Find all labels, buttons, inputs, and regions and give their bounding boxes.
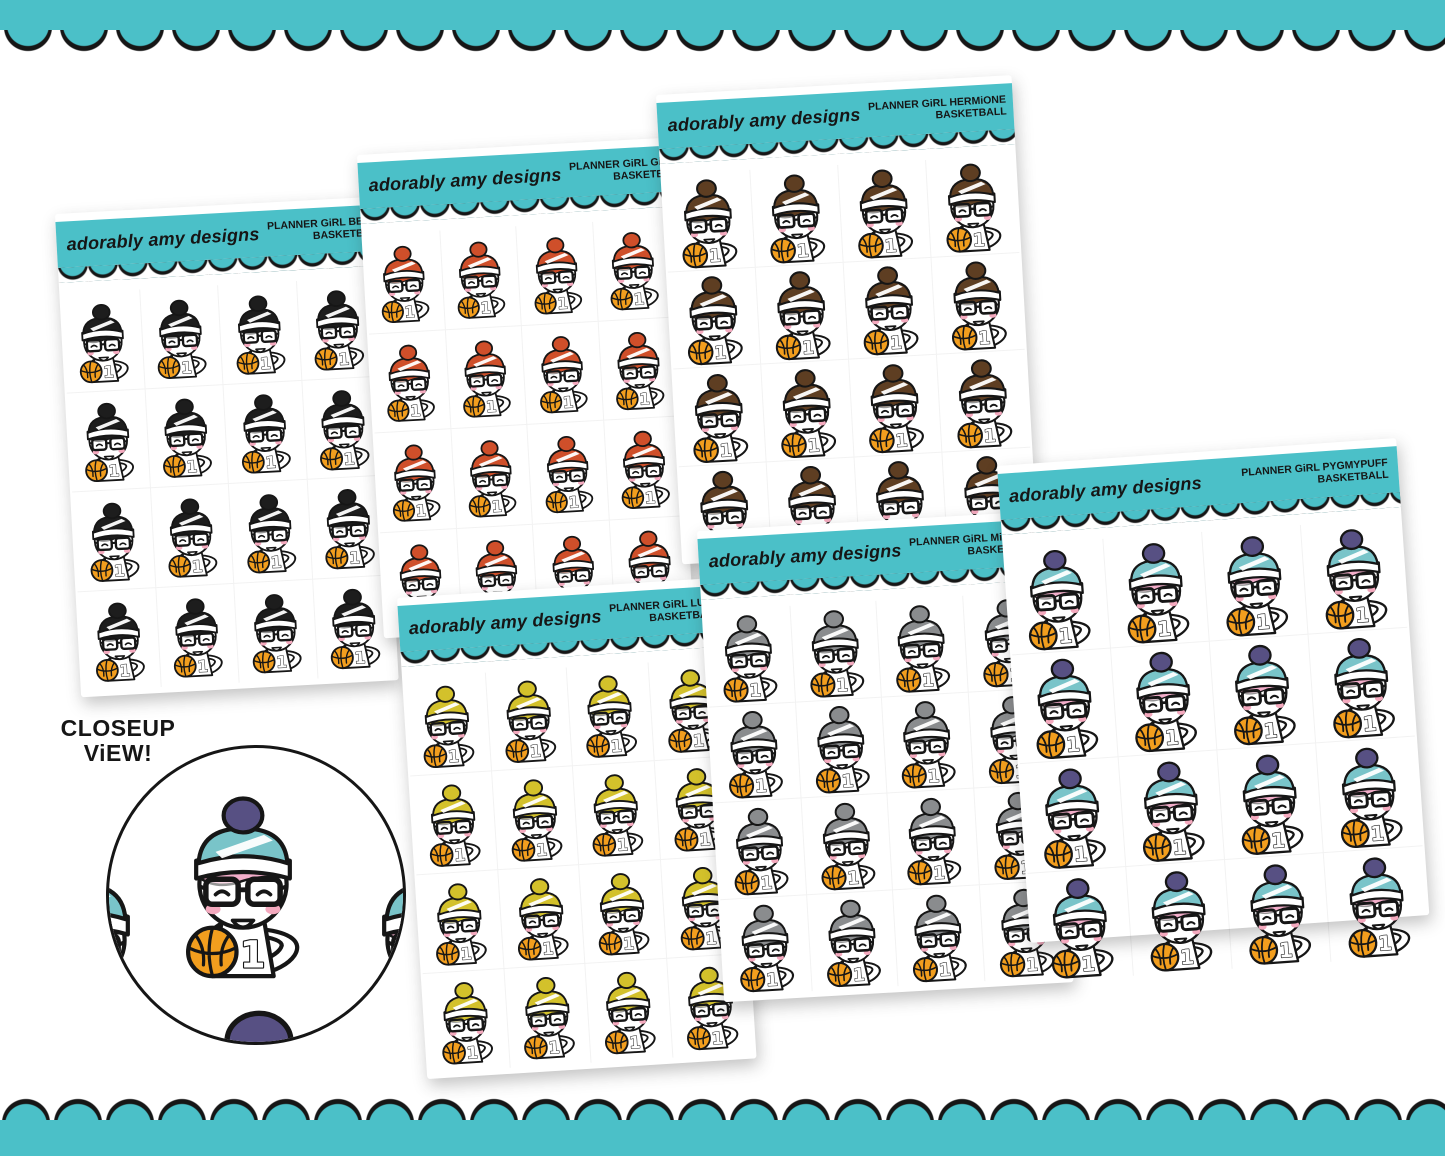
planner-girl-sticker <box>838 160 931 262</box>
planner-girl-character <box>502 870 580 963</box>
planner-girl-sticker <box>1126 860 1232 975</box>
planner-girl-character <box>66 296 140 385</box>
planner-girl-sticker <box>61 290 145 394</box>
planner-girl-sticker <box>67 389 151 493</box>
sticker-sheet-hermione: adorably amy designs PLANNER GiRL HERMiO… <box>656 75 1038 564</box>
planner-girl-sticker <box>72 488 156 592</box>
planner-girl-sticker <box>604 416 686 520</box>
planner-girl-sticker <box>369 330 451 434</box>
planner-girl-character <box>794 602 876 700</box>
planner-girl-sticker <box>522 321 604 425</box>
planner-girl-character <box>941 351 1025 451</box>
planner-girl-character <box>936 253 1020 353</box>
scalloped-border-bottom <box>0 1120 1445 1156</box>
planner-girl-character <box>450 334 522 421</box>
sheet-banner: adorably amy designs PLANNER GiRL BELLA … <box>55 205 375 268</box>
planner-girl-character <box>571 667 649 760</box>
planner-girl-character <box>597 225 670 313</box>
sticker-sheet-bella: adorably amy designs PLANNER GiRL BELLA … <box>55 197 399 697</box>
planner-girl-character <box>160 591 234 680</box>
planner-girl-sticker <box>218 281 302 385</box>
planner-girl-character <box>897 886 979 984</box>
planner-girl-sticker <box>893 885 985 986</box>
sticker-sheet-luna: adorably amy designs PLANNER GiRL LUNA B… <box>397 577 757 1079</box>
planner-girl-sticker <box>1301 518 1407 634</box>
planner-girl-sticker <box>1103 532 1209 648</box>
planner-girl-sticker <box>1005 539 1111 655</box>
planner-girl-sticker <box>720 895 812 996</box>
planner-girl-sticker <box>1217 744 1323 860</box>
planner-girl-character <box>532 429 604 516</box>
planner-girl-sticker <box>709 702 801 803</box>
planner-girl-character <box>930 156 1014 256</box>
planner-girl-character <box>805 795 887 893</box>
product-image: 1 adorably <box>0 0 1445 1156</box>
planner-girl-character <box>853 356 937 456</box>
planner-girl-character <box>526 329 598 416</box>
planner-girl-sticker <box>1119 751 1225 867</box>
planner-girl-character <box>800 698 882 796</box>
planner-girl-character <box>719 800 801 898</box>
sheet-banner: adorably amy designs PLANNER GiRL MiNERV… <box>697 519 1049 585</box>
planner-girl-character <box>1010 540 1105 653</box>
planner-girl-sticker <box>423 969 511 1073</box>
planner-girl-sticker <box>1316 737 1422 853</box>
planner-girl-character <box>755 166 839 266</box>
sticker-grid <box>61 277 396 691</box>
brand-logo-text: adorably amy designs <box>408 606 602 639</box>
planner-girl-character <box>427 975 505 1068</box>
scalloped-border-top <box>0 0 1445 30</box>
planner-girl-character <box>602 324 675 412</box>
planner-girl-sticker <box>926 155 1019 257</box>
planner-girl-sticker <box>761 360 854 462</box>
planner-girl-character <box>1131 861 1226 974</box>
planner-girl-character <box>144 292 218 381</box>
planner-girl-sticker <box>1020 758 1126 874</box>
planner-girl-sticker <box>1012 648 1118 764</box>
planner-girl-character <box>415 777 493 870</box>
planner-girl-sticker <box>498 865 586 969</box>
planner-girl-sticker <box>451 425 533 529</box>
planner-girl-sticker <box>931 253 1024 355</box>
planner-girl-sticker <box>849 355 942 457</box>
closeup-partial-character-right <box>349 840 406 1037</box>
planner-girl-sticker <box>573 761 661 865</box>
planner-girl-character <box>708 607 790 705</box>
planner-girl-character <box>520 230 592 317</box>
planner-girl-character <box>590 964 668 1057</box>
planner-girl-sticker <box>504 964 592 1068</box>
closeup-label: CLOSEUP ViEW! <box>56 716 180 766</box>
planner-girl-character <box>222 288 296 377</box>
sticker-grid <box>363 218 691 632</box>
planner-girl-sticker <box>1028 867 1134 982</box>
planner-girl-character <box>82 595 156 684</box>
planner-girl-sticker <box>1324 846 1430 961</box>
sticker-grid <box>1005 518 1427 937</box>
planner-girl-sticker <box>363 230 445 334</box>
planner-girl-sticker <box>234 579 318 683</box>
planner-girl-sticker <box>807 890 899 991</box>
sheet-banner: adorably amy designs PLANNER GiRL LUNA B… <box>398 585 730 652</box>
planner-girl-character <box>421 875 499 968</box>
sticker-sheet-ginny: adorably amy designs PLANNER GiRL GiNNY … <box>357 138 694 639</box>
sticker-grid <box>662 155 1035 558</box>
planner-girl-character <box>1222 745 1317 858</box>
planner-girl-sticker <box>801 793 893 894</box>
planner-girl-sticker <box>445 326 527 430</box>
planner-girl-character <box>1215 635 1310 748</box>
planner-girl-sticker <box>593 218 675 322</box>
planner-girl-character <box>811 891 893 989</box>
planner-girl-sticker <box>668 267 761 369</box>
planner-girl-character <box>1329 847 1425 961</box>
planner-girl-sticker <box>404 673 492 777</box>
sheet-title: PLANNER GiRL PYGMYPUFF BASKETBALL <box>1241 458 1389 492</box>
planner-girl-character <box>233 487 307 576</box>
planner-girl-sticker <box>140 285 224 389</box>
planner-girl-sticker <box>882 692 974 793</box>
planner-girl-character <box>1306 519 1402 633</box>
planner-girl-character <box>368 239 440 326</box>
brand-logo-text: adorably amy designs <box>368 164 562 196</box>
planner-girl-character <box>408 678 486 771</box>
planner-girl-character <box>490 673 568 766</box>
planner-girl-character <box>1321 738 1417 852</box>
planner-girl-sticker <box>223 380 307 484</box>
planner-girl-sticker <box>1210 634 1316 750</box>
planner-girl-character <box>228 387 302 476</box>
planner-girl-sticker <box>790 601 882 702</box>
planner-girl-sticker <box>416 870 504 974</box>
planner-girl-character <box>1313 628 1409 742</box>
planner-girl-sticker <box>887 788 979 889</box>
planner-girl-sticker <box>1309 627 1415 743</box>
sheet-banner: adorably amy designs PLANNER GiRL PYGMYP… <box>998 446 1400 520</box>
sticker-sheet-pygmypuff: adorably amy designs PLANNER GiRL PYGMYP… <box>997 438 1429 943</box>
planner-girl-sticker <box>77 588 161 692</box>
planner-girl-sticker <box>516 222 598 326</box>
planner-girl-character <box>1124 752 1219 865</box>
brand-logo-text: adorably amy designs <box>66 223 260 254</box>
planner-girl-character <box>149 392 223 481</box>
planner-girl-sticker <box>485 667 573 771</box>
planner-girl-character <box>886 693 968 791</box>
planner-girl-sticker <box>937 350 1030 452</box>
closeup-circle <box>106 745 406 1045</box>
planner-girl-character <box>608 424 681 512</box>
planner-girl-sticker <box>715 798 807 899</box>
planner-girl-character <box>1108 533 1203 646</box>
planner-girl-character <box>238 587 312 676</box>
planner-girl-character <box>496 771 574 864</box>
planner-girl-character <box>76 495 150 584</box>
planner-girl-sticker <box>598 317 680 421</box>
planner-girl-character <box>1207 526 1302 639</box>
closeup-partial-character-left <box>106 840 163 1037</box>
sheet-banner: adorably amy designs PLANNER GiRL HERMiO… <box>656 83 1014 149</box>
planner-girl-character <box>725 896 807 994</box>
planner-girl-sticker <box>229 480 313 584</box>
planner-girl-character <box>667 171 751 271</box>
planner-girl-character <box>848 258 932 358</box>
planner-girl-sticker <box>145 385 229 489</box>
brand-logo-text: adorably amy designs <box>1008 470 1234 507</box>
planner-girl-sticker <box>156 583 240 687</box>
closeup-label-line1: CLOSEUP <box>61 715 176 741</box>
planner-girl-sticker <box>673 365 766 467</box>
planner-girl-character <box>508 970 586 1063</box>
planner-girl-character <box>155 491 229 580</box>
planner-girl-sticker <box>492 766 580 870</box>
sheet-banner: adorably amy designs PLANNER GiRL GiNNY … <box>357 146 669 209</box>
planner-girl-sticker <box>876 596 968 697</box>
planner-girl-character <box>455 433 527 520</box>
planner-girl-sticker <box>662 170 755 272</box>
sticker-grid <box>404 657 754 1073</box>
closeup-label-line2: ViEW! <box>84 740 153 766</box>
planner-girl-sticker <box>756 262 849 364</box>
planner-girl-character <box>678 366 762 466</box>
planner-girl-character <box>71 396 145 485</box>
planner-girl-sticker <box>704 606 796 707</box>
planner-girl-sticker <box>150 484 234 588</box>
planner-girl-character <box>843 161 927 261</box>
planner-girl-sticker <box>410 771 498 875</box>
planner-girl-character <box>766 361 850 461</box>
planner-girl-sticker <box>440 226 522 330</box>
planner-girl-character <box>577 766 655 859</box>
planner-girl-sticker <box>1202 525 1308 641</box>
planner-girl-sticker <box>844 257 937 359</box>
closeup-character <box>161 784 325 981</box>
planner-girl-sticker <box>579 860 667 964</box>
planner-girl-character <box>1116 642 1211 755</box>
planner-girl-sticker <box>1111 641 1217 757</box>
planner-girl-character <box>1230 854 1325 967</box>
planner-girl-character <box>379 437 451 524</box>
planner-girl-character <box>373 338 445 425</box>
planner-girl-character <box>881 597 963 695</box>
planner-girl-sticker <box>527 421 609 525</box>
planner-girl-character <box>444 234 516 321</box>
sheet-title: PLANNER GiRL HERMiONE BASKETBALL <box>868 95 1007 126</box>
brand-logo-text: adorably amy designs <box>667 104 861 136</box>
planner-girl-sticker <box>796 697 888 798</box>
planner-girl-character <box>583 865 661 958</box>
planner-girl-character <box>760 263 844 363</box>
planner-girl-sticker <box>375 429 457 533</box>
planner-girl-character <box>1032 868 1127 981</box>
planner-girl-character <box>1025 759 1120 872</box>
planner-girl-character <box>713 703 795 801</box>
planner-girl-sticker <box>1225 853 1331 968</box>
planner-girl-sticker <box>750 165 843 267</box>
planner-girl-character <box>672 268 756 368</box>
closeup-pom-peek <box>219 1004 299 1045</box>
planner-girl-sticker <box>567 662 655 766</box>
planner-girl-character <box>1017 649 1112 762</box>
planner-girl-sticker <box>585 959 673 1063</box>
brand-logo-text: adorably amy designs <box>708 540 902 572</box>
planner-girl-character <box>892 790 974 888</box>
